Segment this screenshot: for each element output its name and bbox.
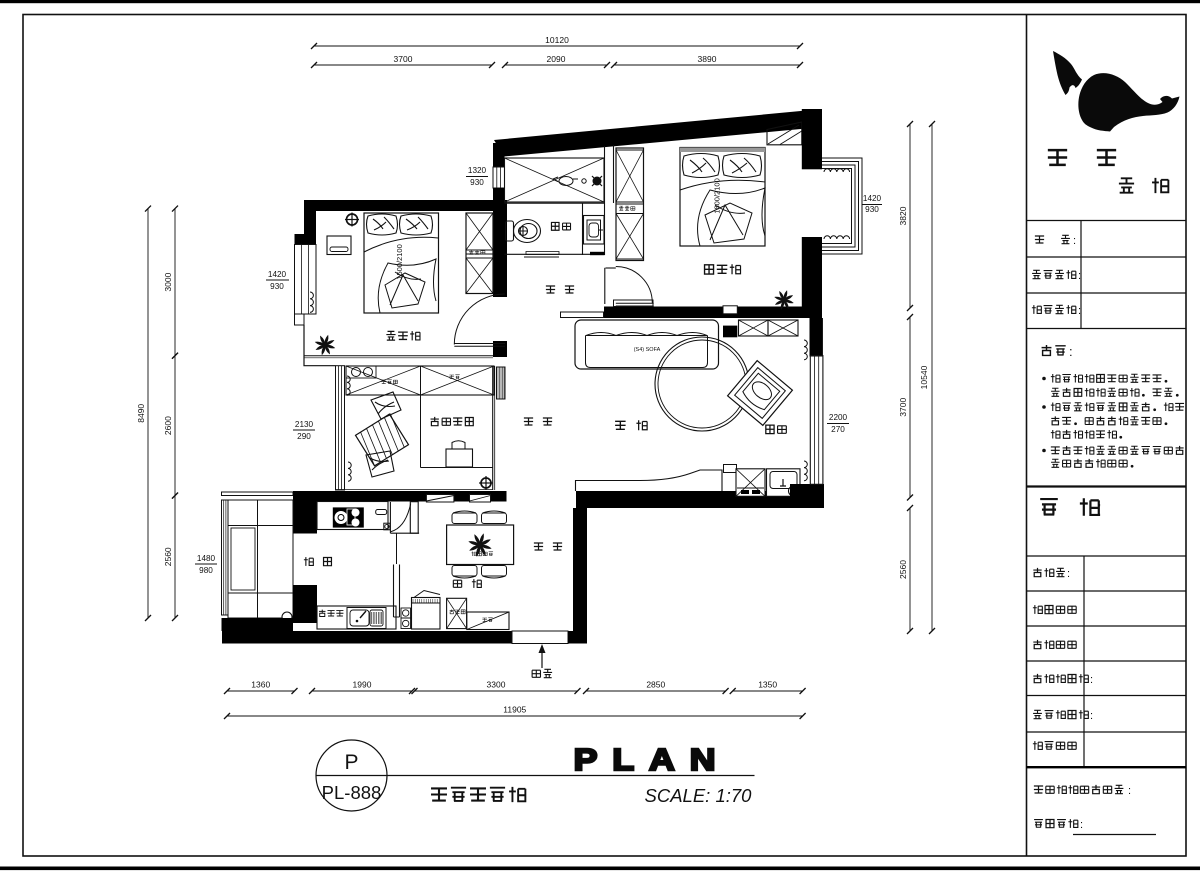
svg-text::: : (1128, 785, 1131, 797)
svg-text:1360: 1360 (251, 680, 270, 690)
svg-text:930: 930 (270, 282, 284, 291)
svg-text:10120: 10120 (545, 35, 569, 45)
svg-text:2200: 2200 (829, 413, 848, 422)
svg-text:1420: 1420 (268, 270, 287, 279)
svg-text::: : (1073, 235, 1076, 247)
svg-text:2850: 2850 (646, 680, 665, 690)
svg-text:3820: 3820 (898, 206, 908, 225)
svg-text:1990: 1990 (353, 680, 372, 690)
svg-text::: : (1080, 819, 1083, 831)
svg-text:270: 270 (831, 425, 845, 434)
svg-text:3890: 3890 (698, 54, 717, 64)
svg-text::: : (1069, 344, 1073, 359)
svg-text:1350: 1350 (758, 680, 777, 690)
svg-text:3700: 3700 (898, 398, 908, 417)
svg-text:290: 290 (297, 432, 311, 441)
svg-text:2600: 2600 (163, 416, 173, 435)
svg-text:3300: 3300 (487, 680, 506, 690)
svg-text::: : (1090, 674, 1093, 686)
svg-text:SCALE: 1:70: SCALE: 1:70 (645, 785, 753, 806)
svg-text::: : (1078, 305, 1081, 317)
svg-text::: : (1090, 710, 1093, 722)
svg-text:980: 980 (199, 566, 213, 575)
svg-text:930: 930 (865, 205, 879, 214)
svg-text:2560: 2560 (898, 560, 908, 579)
svg-text:2130: 2130 (295, 420, 314, 429)
svg-text:2560: 2560 (163, 547, 173, 566)
svg-text::: : (1096, 496, 1102, 521)
svg-text:11905: 11905 (503, 705, 526, 715)
svg-text:1480: 1480 (197, 554, 216, 563)
svg-text:P: P (344, 751, 358, 774)
svg-text:PLAN: PLAN (574, 743, 731, 777)
svg-text:3000: 3000 (163, 272, 173, 291)
svg-text::: : (1078, 270, 1081, 282)
svg-text:3700: 3700 (394, 54, 413, 64)
svg-text::: : (1067, 568, 1070, 580)
svg-text:PL-888: PL-888 (322, 782, 382, 803)
svg-text:2090: 2090 (547, 54, 566, 64)
svg-text:930: 930 (470, 178, 484, 187)
svg-text:1320: 1320 (468, 166, 487, 175)
svg-text:10540: 10540 (919, 365, 929, 389)
svg-text:1420: 1420 (863, 194, 882, 203)
svg-text:8490: 8490 (136, 404, 146, 423)
svg-text:(S4) SOFA: (S4) SOFA (634, 347, 661, 353)
